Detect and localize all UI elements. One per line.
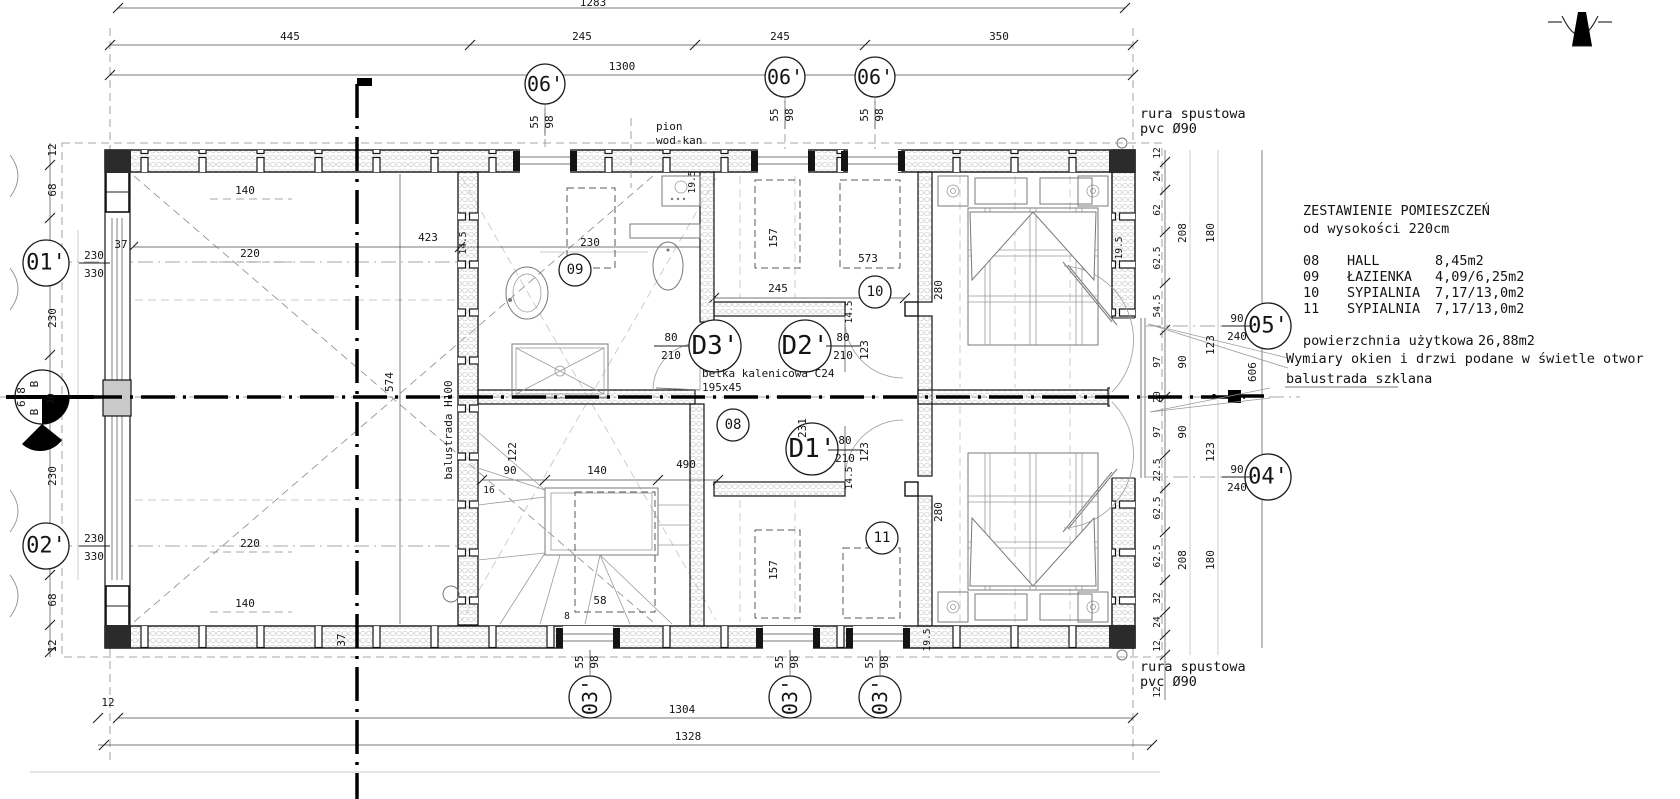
dim-573: 573: [858, 252, 878, 265]
room-08-label: 08: [725, 417, 742, 433]
staircase: [443, 432, 690, 624]
pillow: [975, 178, 1027, 204]
bed-top: [938, 176, 1108, 345]
callout-04-b: 240: [1227, 481, 1247, 494]
dim-14-5: 14.5: [458, 232, 469, 255]
schedule-row-no: 08: [1303, 253, 1319, 269]
door-d1-b: 210: [835, 452, 855, 465]
dim-122: 122: [506, 442, 519, 462]
room-09-label: 09: [567, 262, 584, 278]
dim-98: 98: [588, 655, 601, 668]
callout-04-a: 90: [1230, 463, 1243, 476]
dim-423: 423: [418, 231, 438, 244]
dim-12-bl: 12: [101, 696, 114, 709]
callout-01-a: 230: [84, 249, 104, 262]
dim-r180a: 180: [1204, 223, 1217, 243]
downpipe-bottom: [1117, 650, 1127, 660]
dim-19-5: 19.5: [687, 171, 698, 194]
window-03-3: [846, 626, 910, 650]
reference-bracket: [10, 575, 18, 617]
dim-490: 490: [676, 458, 696, 471]
dim-r24a: 24: [1152, 170, 1163, 182]
dim-1300: 1300: [609, 60, 636, 73]
section-flag: [357, 78, 372, 86]
dim-14-5: 14.5: [844, 467, 855, 490]
balustrade-note: balustrada H100: [442, 380, 455, 479]
schedule-note-1: Wymiary okien i drzwi podane w świetle o…: [1286, 351, 1644, 367]
dim-r62-5b: 62.5: [1152, 497, 1163, 520]
dim-left-68a: 68: [46, 183, 59, 196]
reference-bracket: [10, 490, 18, 532]
section-letter-2: B: [28, 408, 41, 415]
dim-left-12a: 12: [46, 143, 59, 156]
dim-90-stair: 90: [503, 464, 516, 477]
dim-r12b: 12: [1152, 640, 1163, 651]
window-03-2: [756, 626, 820, 650]
ridge-beam-note-1: belka kalenicowa C24: [702, 367, 835, 380]
dim-r12c: 12: [1152, 686, 1163, 697]
window-06-3: [841, 149, 905, 173]
ridge-beam-note-2: 195x45: [702, 381, 742, 394]
dim-55: 55: [858, 108, 871, 121]
dim-98: 98: [878, 655, 891, 668]
dim-55: 55: [863, 655, 876, 668]
callout-05-label: 05': [1248, 314, 1288, 339]
north-arrow-icon: [1548, 12, 1612, 46]
dim-55: 55: [768, 108, 781, 121]
room-schedule: ZESTAWIENIE POMIESZCZEŃ od wysokości 220…: [1286, 202, 1644, 387]
door-d1-label: D1': [789, 434, 836, 464]
room-11-label: 11: [874, 530, 891, 546]
schedule-total-label: powierzchnia użytkowa: [1303, 333, 1474, 349]
schedule-row-area: 7,17/13,0m2: [1435, 301, 1524, 317]
wall-bath-east: [700, 172, 714, 322]
dim-1328: 1328: [675, 730, 702, 743]
dim-445: 445: [280, 30, 300, 43]
dim-245-hall: 245: [768, 282, 788, 295]
bed-bottom: [938, 453, 1108, 622]
dim-37-bottom: 37: [335, 633, 348, 646]
dim-123: 123: [858, 442, 871, 462]
schedule-row-no: 09: [1303, 269, 1319, 285]
reference-bracket: [10, 268, 18, 310]
corner-post: [1109, 150, 1135, 173]
dim-8: 8: [564, 611, 570, 622]
schedule-row-area: 7,17/13,0m2: [1435, 285, 1524, 301]
downpipe-note-bottom-2: pvc Ø90: [1140, 674, 1197, 690]
wall-stair-east: [690, 404, 704, 626]
window-03-1: [556, 626, 620, 650]
dim-r54-5: 54.5: [1152, 295, 1163, 318]
dim-1283: 1283: [580, 0, 607, 9]
dim-r62-5c: 62.5: [1152, 545, 1163, 568]
callout-05-a: 90: [1230, 312, 1243, 325]
schedule-total-value: 26,88m2: [1478, 333, 1535, 349]
callout-05-b: 240: [1227, 330, 1247, 343]
dim-140-bottom: 140: [235, 597, 255, 610]
section-depth: 30: [46, 393, 57, 405]
dim-55: 55: [773, 655, 786, 668]
dim-r97b: 97: [1152, 426, 1163, 437]
section-letter-1: B: [28, 380, 41, 387]
dim-left-230b: 230: [46, 466, 59, 486]
downpipe-note-top-1: rura spustowa: [1140, 106, 1246, 122]
pillow: [975, 594, 1027, 620]
dim-left-68b: 68: [46, 593, 59, 606]
callout-06-2-label: 06': [767, 65, 803, 89]
dim-37-top: 37: [114, 238, 127, 251]
dim-19-5: 19.5: [922, 629, 933, 652]
door-d2-swing: [845, 320, 903, 378]
dim-r208b: 208: [1176, 550, 1189, 570]
dim-r208a: 208: [1176, 223, 1189, 243]
schedule-row-no: 11: [1303, 301, 1319, 317]
pillow: [1040, 594, 1092, 620]
dim-280: 280: [932, 502, 945, 522]
dim-58: 58: [593, 594, 606, 607]
dim-140-top: 140: [235, 184, 255, 197]
dim-245a: 245: [572, 30, 592, 43]
dim-r123a: 123: [1204, 335, 1217, 355]
dim-140-stair: 140: [587, 464, 607, 477]
room-10-label: 10: [867, 284, 884, 300]
callout-01-b: 330: [84, 267, 104, 280]
door-d2-b: 210: [833, 349, 853, 362]
wardrobe: [755, 180, 800, 268]
dim-r123b: 123: [1204, 442, 1217, 462]
callout-01-label: 01': [26, 251, 66, 276]
callout-03-2-label: 03': [778, 679, 802, 715]
dim-157: 157: [767, 560, 780, 580]
window-06-2: [751, 149, 815, 173]
dim-r97a: 97: [1152, 356, 1163, 367]
section-sheet: 6,8: [15, 387, 28, 407]
callout-03-1-label: 03': [578, 679, 602, 715]
callout-06-3-label: 06': [857, 65, 893, 89]
door-d2-a: 80: [836, 331, 849, 344]
section-lines: [6, 12, 1612, 799]
pillow: [1040, 178, 1092, 204]
dim-220-top: 220: [240, 247, 260, 260]
reference-bracket: [10, 155, 18, 197]
dim-r22-5: 22.5: [1152, 459, 1163, 482]
door-d3-label: D3': [692, 331, 739, 361]
dim-98: 98: [873, 108, 886, 121]
door-d2-label: D2': [782, 331, 829, 361]
schedule-row-name: ŁAZIENKA: [1346, 269, 1412, 285]
schedule-row-name: SYPIALNIA: [1347, 301, 1420, 317]
dim-123: 123: [858, 340, 871, 360]
riser-note-2: wod-kan: [656, 134, 702, 147]
architectural-floor-plan: 1283 445 245 245 350 1300 06' 06' 06' 55…: [0, 0, 1680, 799]
dim-14-5: 14.5: [844, 301, 855, 324]
washbasin: [506, 267, 548, 319]
dim-r180b: 180: [1204, 550, 1217, 570]
dim-r62: 62: [1152, 204, 1163, 215]
dim-left-230a: 230: [46, 308, 59, 328]
dim-r32: 32: [1152, 592, 1163, 603]
dim-r62-5a: 62.5: [1152, 247, 1163, 270]
dim-245b: 245: [770, 30, 790, 43]
dim-350: 350: [989, 30, 1009, 43]
toilet: [630, 224, 700, 290]
downpipe-marker: [443, 586, 459, 602]
door-d3-b: 210: [661, 349, 681, 362]
corner-post: [1109, 625, 1135, 648]
schedule-subtitle: od wysokości 220cm: [1303, 221, 1449, 237]
dim-left-12b: 12: [46, 639, 59, 652]
dim-r20: 20: [1152, 391, 1163, 403]
wardrobe: [843, 548, 900, 618]
dim-55: 55: [528, 115, 541, 128]
section-arrow: [1228, 390, 1241, 403]
schedule-row-area: 4,09/6,25m2: [1435, 269, 1524, 285]
downpipe-note-top-2: pvc Ø90: [1140, 121, 1197, 137]
door-d3-a: 80: [664, 331, 677, 344]
dim-574: 574: [383, 372, 396, 392]
callout-02-b: 330: [84, 550, 104, 563]
schedule-title: ZESTAWIENIE POMIESZCZEŃ: [1303, 202, 1490, 219]
schedule-note-2: balustrada szklana: [1286, 371, 1432, 387]
downpipe-note-bottom-1: rura spustowa: [1140, 659, 1246, 675]
dim-606: 606: [1246, 362, 1259, 382]
window-06-1: [513, 149, 577, 173]
dim-19-5: 19.5: [1114, 237, 1125, 260]
dim-r90a: 90: [1176, 355, 1189, 368]
dim-98: 98: [783, 108, 796, 121]
wall-left-glazing: [103, 150, 131, 648]
floor-plan-canvas: 1283 445 245 245 350 1300 06' 06' 06' 55…: [0, 0, 1680, 799]
dim-1304: 1304: [669, 703, 696, 716]
schedule-row-name: SYPIALNIA: [1347, 285, 1420, 301]
dim-280: 280: [932, 280, 945, 300]
dim-r24b: 24: [1152, 616, 1163, 628]
wall-top-exterior: [105, 150, 1135, 172]
door-d1-a: 80: [838, 434, 851, 447]
wall-hall-south: [714, 482, 918, 496]
dim-55: 55: [573, 655, 586, 668]
schedule-row-area: 8,45m2: [1435, 253, 1484, 269]
callout-02-a: 230: [84, 532, 104, 545]
schedule-row-name: HALL: [1347, 253, 1380, 269]
corner-post: [105, 625, 131, 648]
dim-230-bath: 230: [580, 236, 600, 249]
riser-note-1: pion: [656, 120, 683, 133]
dim-157: 157: [767, 228, 780, 248]
callout-02-label: 02': [26, 534, 66, 559]
dim-98: 98: [543, 115, 556, 128]
dim-98: 98: [788, 655, 801, 668]
callout-04-label: 04': [1248, 465, 1288, 490]
dim-r12a: 12: [1152, 147, 1163, 158]
wall-hall-north: [714, 302, 918, 316]
dim-r90b: 90: [1176, 425, 1189, 438]
schedule-row-no: 10: [1303, 285, 1319, 301]
dim-220-bottom: 220: [240, 537, 260, 550]
callout-03-3-label: 03': [868, 679, 892, 715]
dim-16: 16: [483, 485, 495, 496]
callout-06-1-label: 06': [527, 72, 563, 96]
corner-post: [105, 150, 131, 173]
